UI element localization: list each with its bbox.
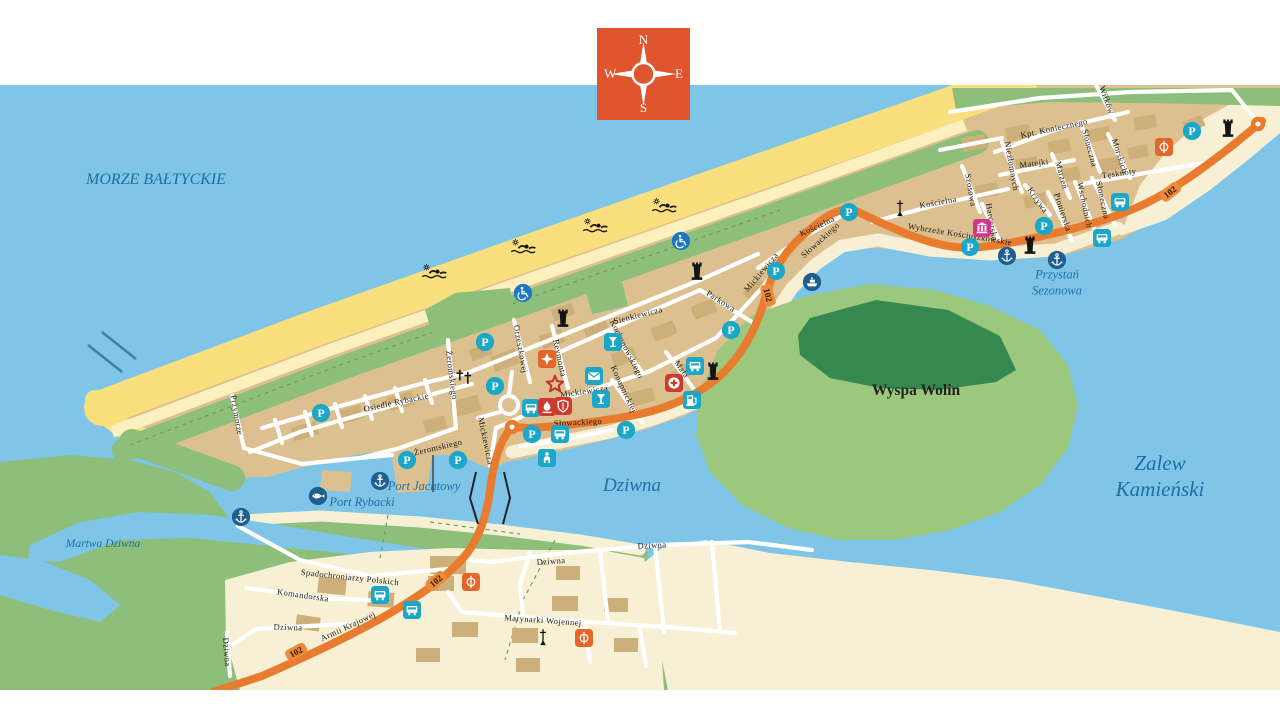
- monument-icon: [462, 573, 480, 591]
- monument-star-icon: [544, 373, 566, 395]
- svg-text:P: P: [481, 335, 488, 349]
- watch-tower-icon: [705, 360, 722, 382]
- svg-text:P: P: [1040, 219, 1047, 233]
- parking-icon: P: [449, 451, 468, 470]
- watch-tower-icon: [689, 260, 706, 282]
- bottom-margin: [0, 690, 1280, 718]
- island-label: Wyspa Wolin: [872, 382, 960, 400]
- water-label: ZalewKamieński: [1116, 450, 1205, 503]
- bus-stop-icon: [1111, 193, 1129, 211]
- svg-text:P: P: [491, 379, 498, 393]
- svg-text:P: P: [966, 240, 973, 254]
- bus-stop-icon: [686, 357, 704, 375]
- anchor-marina-icon: [232, 508, 251, 527]
- svg-text:P: P: [1188, 124, 1195, 138]
- parking-icon: P: [722, 321, 741, 340]
- compass-n: N: [639, 32, 648, 48]
- parking-icon: P: [312, 404, 331, 423]
- anchor-marina-icon: [998, 247, 1017, 266]
- parking-icon: P: [617, 421, 636, 440]
- parking-icon: P: [840, 203, 859, 222]
- parking-icon: P: [523, 425, 542, 444]
- bar-icon: [592, 390, 610, 408]
- water-label: MORZE BAŁTYCKIE: [86, 170, 226, 190]
- parking-icon: P: [767, 262, 786, 281]
- parking-icon: P: [486, 377, 505, 396]
- swimmer-icon: [509, 239, 539, 256]
- fuel-station-icon: [683, 391, 701, 409]
- post-office-icon: [585, 367, 603, 385]
- road-junction-icon: [1250, 116, 1266, 132]
- svg-text:P: P: [528, 427, 535, 441]
- monument-icon: [1155, 138, 1173, 156]
- parking-icon: P: [1035, 217, 1054, 236]
- svg-text:P: P: [317, 406, 324, 420]
- svg-text:P: P: [727, 323, 734, 337]
- street-label: Dziwna: [536, 555, 565, 567]
- compass-e: E: [675, 66, 683, 82]
- svg-text:P: P: [454, 453, 461, 467]
- bus-stop-icon: [1093, 229, 1111, 247]
- svg-text:P: P: [622, 423, 629, 437]
- shield-icon: [554, 397, 572, 415]
- cemetery-icon: [455, 369, 476, 386]
- museum-icon: [973, 219, 991, 237]
- water-label: Dziwna: [603, 474, 661, 498]
- water-label: Port Rybacki: [329, 495, 394, 511]
- watch-tower-icon: [1022, 234, 1039, 256]
- anchor-marina-icon: [1048, 251, 1067, 270]
- church-icon: [894, 199, 907, 218]
- parking-icon: P: [1183, 122, 1202, 141]
- street-label: Dziwna: [273, 621, 302, 632]
- svg-text:P: P: [845, 205, 852, 219]
- compass-w: W: [604, 66, 616, 82]
- water-label: PrzystańSezonowa: [1032, 267, 1082, 298]
- church-icon: [537, 628, 550, 647]
- bus-stop-icon: [403, 601, 421, 619]
- fishing-port-icon: [309, 487, 328, 506]
- compass-rose: N S W E: [597, 28, 690, 120]
- bus-stop-icon: [371, 586, 389, 604]
- monument-icon: [575, 629, 593, 647]
- accessible-beach-icon: [672, 232, 691, 251]
- parking-icon: P: [961, 238, 980, 257]
- swimmer-icon: [650, 198, 680, 215]
- parking-icon: P: [398, 451, 417, 470]
- accessible-beach-icon: [514, 284, 533, 303]
- swimmer-icon: [581, 218, 611, 235]
- water-label: Martwa Dziwna: [66, 537, 140, 551]
- bar-icon: [604, 333, 622, 351]
- water-label: Port Jachtowy: [388, 479, 461, 495]
- compass-s: S: [640, 100, 647, 116]
- street-label: Dziwna: [637, 539, 666, 550]
- watch-tower-icon: [555, 307, 572, 329]
- swimmer-icon: [420, 264, 450, 281]
- ferry-icon: [803, 273, 822, 292]
- pharmacy-icon: [665, 374, 683, 392]
- bus-stop-icon: [551, 425, 569, 443]
- svg-text:P: P: [772, 264, 779, 278]
- watch-tower-icon: [1220, 117, 1237, 139]
- svg-text:P: P: [403, 453, 410, 467]
- anchor-marina-icon: [371, 472, 390, 491]
- road-junction-icon: [504, 419, 520, 435]
- parking-icon: P: [476, 333, 495, 352]
- star-landmark-icon: [538, 350, 556, 368]
- toilets-icon: [538, 449, 556, 467]
- dziwnow-tourist-map: N S W E PrzymorzeOsiedle RybackieŻeromsk…: [0, 0, 1280, 718]
